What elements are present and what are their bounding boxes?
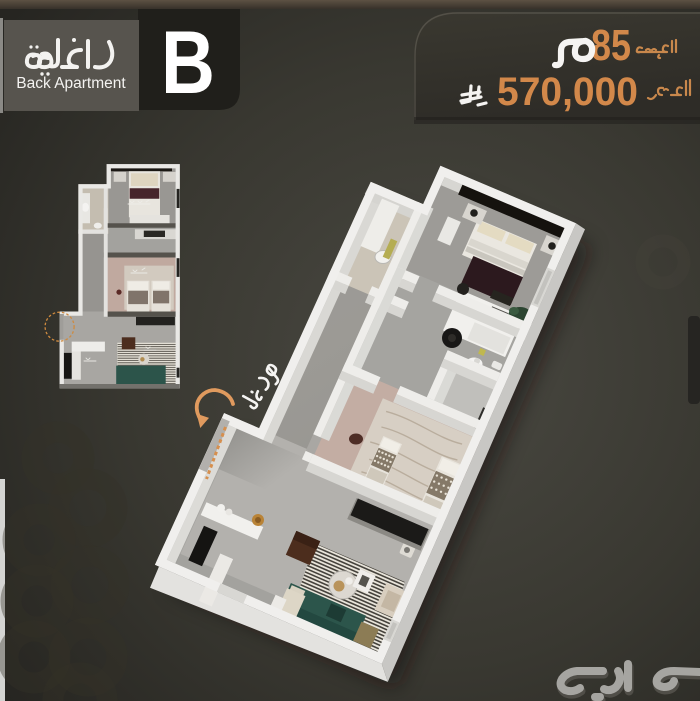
- svg-text:Back Apartment: Back Apartment: [16, 75, 126, 92]
- svg-text:85: 85: [591, 21, 631, 70]
- svg-text:570,000: 570,000: [497, 70, 638, 114]
- svg-text:B: B: [161, 12, 215, 112]
